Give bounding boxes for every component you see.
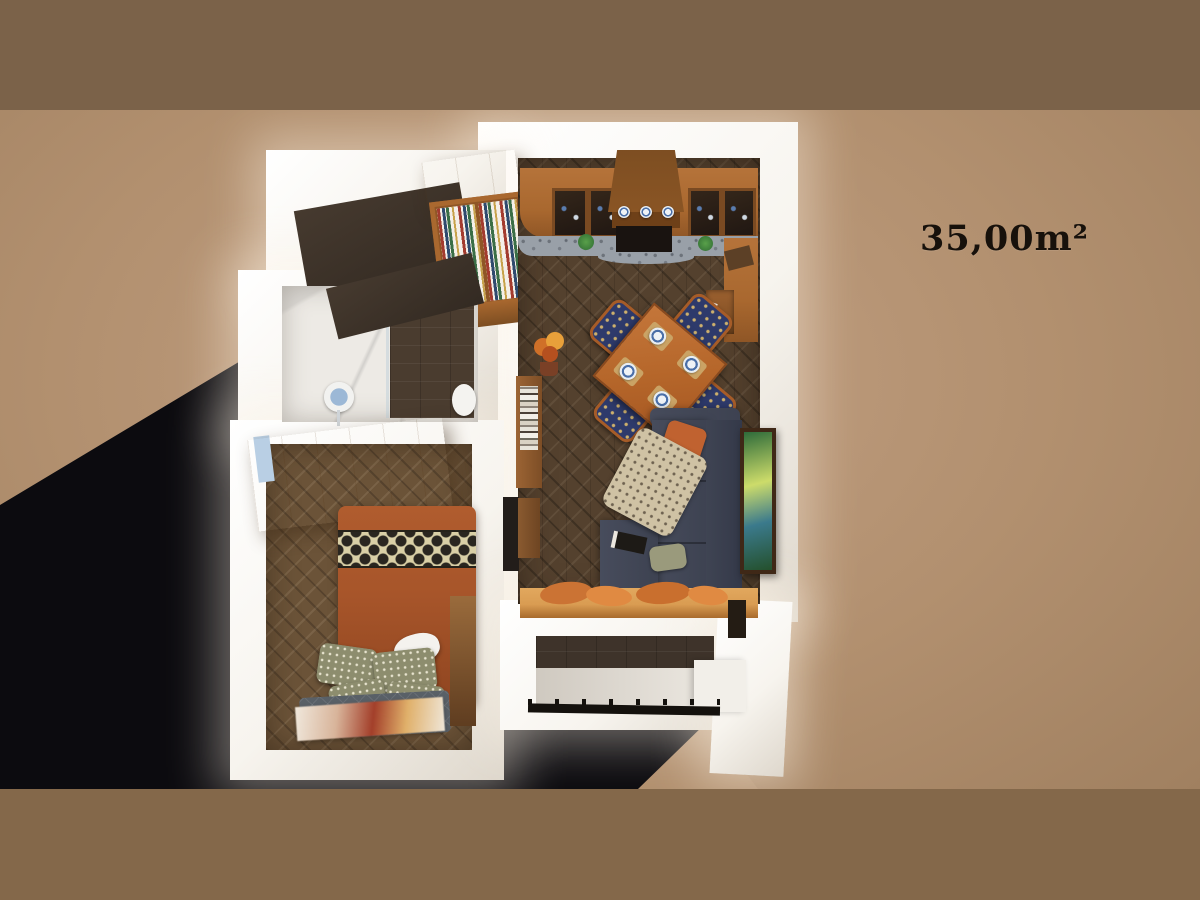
toilet: [452, 384, 476, 416]
media-cabinet: [518, 498, 540, 558]
sink-stand: [337, 410, 340, 426]
wall-painting: [740, 428, 776, 574]
autumn-plant: [534, 332, 568, 366]
tv-panel: [503, 497, 519, 571]
balcony-door: [728, 600, 746, 638]
balcony-wall: [536, 636, 714, 670]
stove: [616, 226, 672, 252]
area-label: 35,00m²: [920, 218, 1089, 259]
plant-pot: [540, 362, 558, 376]
render-scene: 35,00m²: [0, 0, 1200, 900]
bed-decor-band: [338, 530, 476, 568]
range-hood: [608, 150, 684, 212]
kitchen-glass-door: [722, 188, 756, 238]
console-shelf: [516, 376, 542, 488]
counter-plant: [698, 236, 713, 251]
olive-pillow: [648, 543, 687, 573]
sofa-backrest: [706, 420, 742, 606]
display-plate: [640, 206, 652, 218]
kitchen-glass-door: [688, 188, 722, 238]
sink-basin: [324, 382, 354, 412]
bedside-panel: [450, 596, 476, 726]
letterbox-bottom: [0, 789, 1200, 900]
magazine-stack: [520, 386, 538, 450]
kitchen-glass-door: [552, 188, 588, 238]
display-plate: [662, 206, 674, 218]
countertop-bump: [598, 250, 694, 264]
display-plate: [618, 206, 630, 218]
bathroom-floor: [282, 286, 478, 422]
letterbox-top: [0, 0, 1200, 110]
counter-plant: [578, 234, 594, 250]
